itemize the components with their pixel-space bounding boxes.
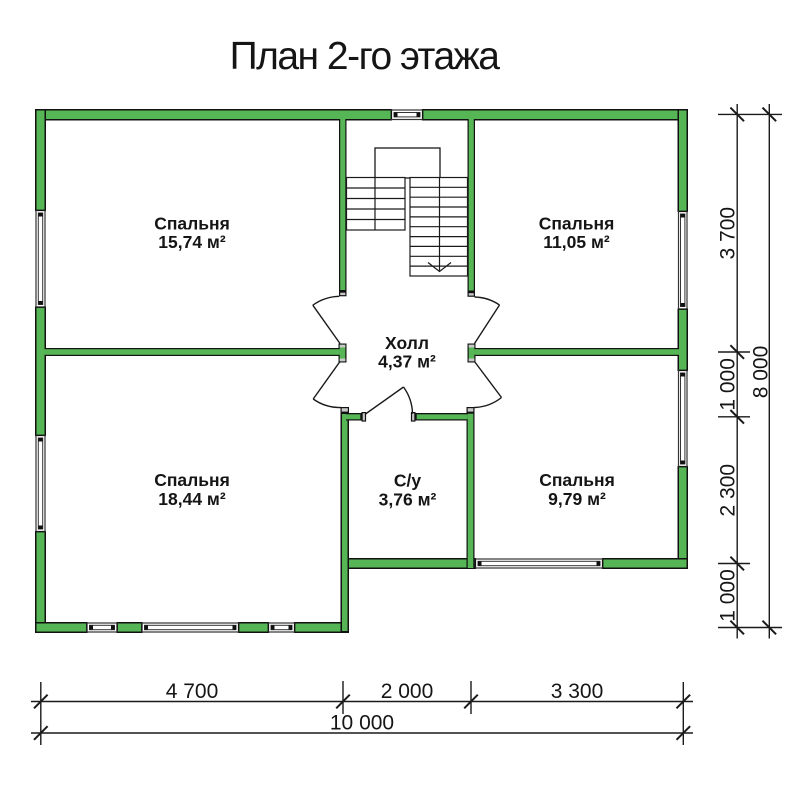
- svg-text:8 000: 8 000: [749, 346, 772, 399]
- svg-text:4,37 м²: 4,37 м²: [378, 352, 436, 372]
- svg-text:1 000: 1 000: [717, 358, 740, 411]
- svg-text:15,74 м²: 15,74 м²: [158, 232, 226, 252]
- svg-text:18,44 м²: 18,44 м²: [158, 489, 226, 509]
- svg-text:2 300: 2 300: [717, 464, 740, 517]
- svg-text:С/у: С/у: [394, 471, 422, 491]
- svg-text:План 2-го этажа: План 2-го этажа: [230, 35, 501, 78]
- svg-text:Холл: Холл: [385, 333, 429, 353]
- svg-text:Спальня: Спальня: [154, 214, 230, 234]
- svg-text:9,79 м²: 9,79 м²: [548, 489, 606, 509]
- svg-text:Спальня: Спальня: [154, 470, 230, 490]
- svg-text:3 700: 3 700: [717, 207, 740, 260]
- svg-text:2 000: 2 000: [381, 680, 434, 703]
- svg-text:11,05 м²: 11,05 м²: [543, 232, 610, 252]
- svg-text:3,76 м²: 3,76 м²: [379, 490, 437, 510]
- svg-text:1 000: 1 000: [717, 569, 740, 622]
- svg-text:4 700: 4 700: [166, 680, 219, 703]
- svg-text:Спальня: Спальня: [539, 470, 615, 490]
- svg-text:10 000: 10 000: [330, 712, 394, 735]
- svg-text:3 300: 3 300: [551, 680, 604, 703]
- svg-text:Спальня: Спальня: [539, 214, 615, 234]
